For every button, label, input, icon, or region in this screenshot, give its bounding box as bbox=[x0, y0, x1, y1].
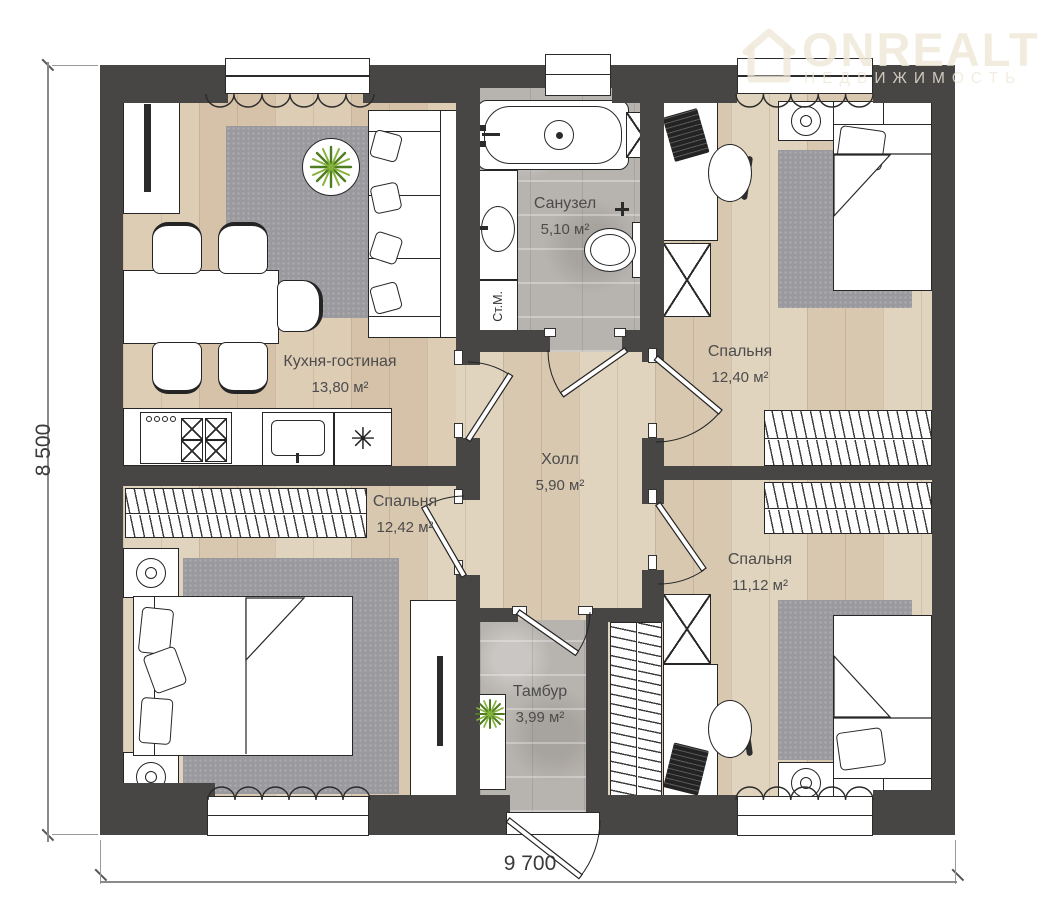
room-name: Тамбур bbox=[470, 678, 610, 705]
room-area: 12,40 м² bbox=[670, 365, 810, 391]
plant-icon bbox=[311, 147, 351, 187]
room-label-bedroom-left: Спальня 12,42 м² bbox=[335, 488, 475, 541]
dimension-line-bottom bbox=[100, 881, 957, 883]
room-name: Холл bbox=[490, 446, 630, 473]
dimension-label-left: 8 500 bbox=[32, 400, 56, 500]
dimension-value: 9 700 bbox=[504, 852, 557, 875]
room-area: 5,10 м² bbox=[495, 217, 635, 243]
room-area: 11,12 м² bbox=[690, 573, 830, 599]
room-label-kitchen-living: Кухня-гостиная 13,80 м² bbox=[255, 348, 425, 401]
room-name: Спальня bbox=[670, 338, 810, 365]
door-vestibule bbox=[517, 610, 590, 656]
room-label-bedroom-bottom-right: Спальня 11,12 м² bbox=[690, 546, 830, 599]
dimension-label-bottom: 9 700 bbox=[460, 852, 600, 876]
room-name: Спальня bbox=[335, 488, 475, 515]
floor-plan: ✳ Ст.М. bbox=[0, 0, 1058, 910]
room-area: 12,42 м² bbox=[335, 515, 475, 541]
door-bathroom bbox=[548, 348, 627, 397]
room-name: Спальня bbox=[690, 546, 830, 573]
room-area: 3,99 м² bbox=[470, 705, 610, 731]
room-area: 5,90 м² bbox=[490, 473, 630, 499]
dimension-value: 8 500 bbox=[32, 424, 55, 477]
room-name: Кухня-гостиная bbox=[255, 348, 425, 375]
door-kitchen bbox=[466, 362, 513, 441]
room-name: Санузел bbox=[495, 190, 635, 217]
room-area: 13,80 м² bbox=[255, 375, 425, 401]
room-label-vestibule: Тамбур 3,99 м² bbox=[470, 678, 610, 731]
room-label-bathroom: Санузел 5,10 м² bbox=[495, 190, 635, 243]
room-label-hall: Холл 5,90 м² bbox=[490, 446, 630, 499]
room-label-bedroom-top-right: Спальня 12,40 м² bbox=[670, 338, 810, 391]
